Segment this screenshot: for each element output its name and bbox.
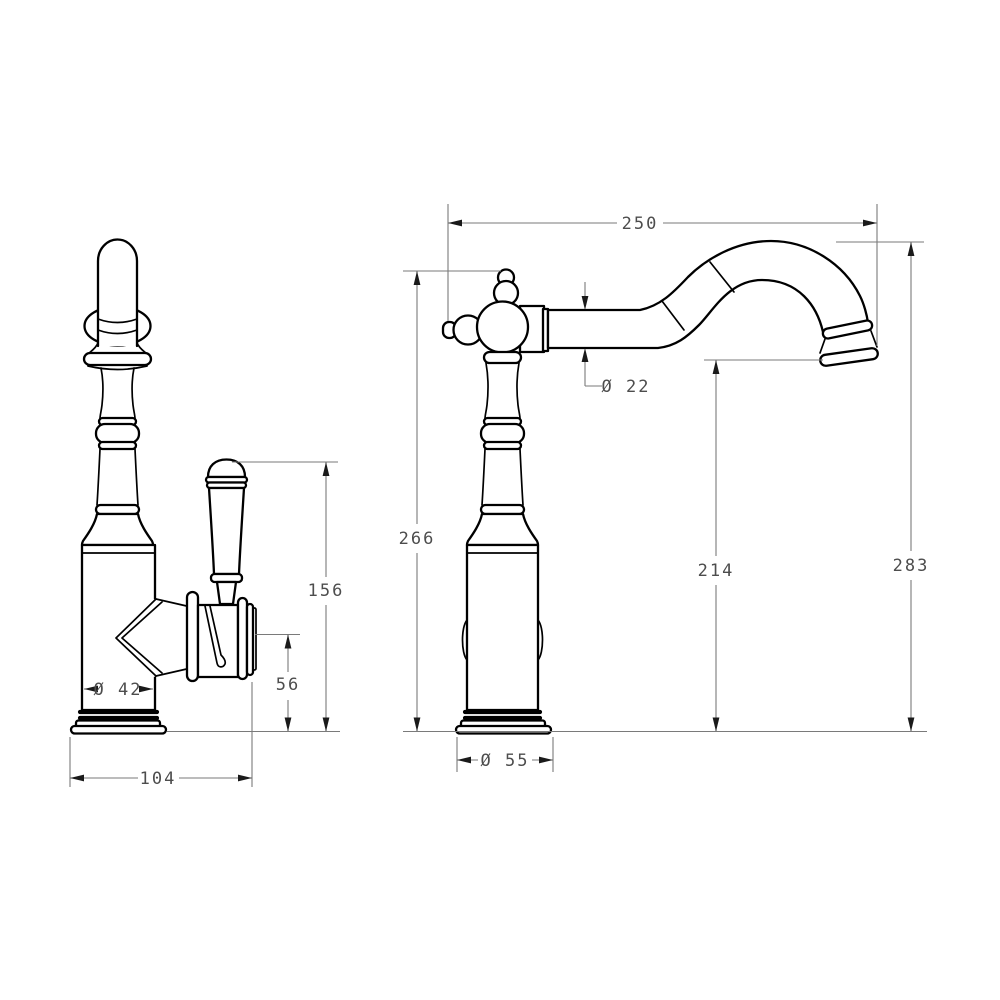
valve-end-cap-2 (247, 604, 253, 675)
arrow-156-up (323, 462, 330, 476)
arrow-104-right (238, 775, 252, 782)
arrow-266-down (414, 718, 421, 732)
spout-tube (98, 240, 137, 347)
valve-washer-large (187, 592, 198, 681)
arrow-214-down (713, 718, 720, 732)
arrow-104-left (70, 775, 84, 782)
arrow-250-right (863, 220, 877, 227)
arrow-dia22-down (582, 296, 589, 310)
handle-base-collar (211, 574, 242, 582)
column-cylinder (467, 545, 538, 710)
arrow-250-left (448, 220, 462, 227)
column-collar (484, 352, 521, 363)
arrow-214-up (713, 360, 720, 374)
collar-band (84, 353, 151, 365)
neck-left-profile (100, 368, 103, 419)
column-skirt (467, 514, 538, 545)
column-neck-left (485, 363, 488, 419)
lower-taper-right (135, 449, 138, 505)
dim-label-dia55: Ø 55 (481, 751, 530, 771)
outlet-flare-left (820, 339, 825, 353)
valve-body-ball (477, 302, 528, 353)
bead-ring-bottom (99, 442, 136, 449)
faucet-technical-drawing: 156 56 Ø 42 104 250 Ø 22 (0, 0, 1000, 1000)
arrow-266-up (414, 271, 421, 285)
dim-label-250: 250 (622, 214, 659, 234)
arrow-dia55-right (539, 757, 553, 764)
dim-label-214: 214 (698, 561, 735, 581)
skirt-flare (82, 514, 153, 545)
base-plate (71, 726, 166, 734)
dim-label-283: 283 (893, 556, 930, 576)
side-view (71, 240, 256, 734)
bead-ring-middle (96, 424, 139, 443)
collar-bottom-ellipse (88, 366, 147, 370)
column-taper-left (482, 449, 485, 505)
arrow-56-down (285, 718, 292, 732)
arrow-283-up (908, 242, 915, 256)
handle-grip (209, 488, 244, 574)
valve-end-cap-1 (238, 598, 247, 679)
column-taper-right (520, 449, 523, 505)
arrow-dia22-up (582, 348, 589, 362)
dim-label-56: 56 (276, 675, 300, 695)
dim-label-156: 156 (308, 581, 345, 601)
dim-label-dia22: Ø 22 (602, 377, 651, 397)
arrow-156-down (323, 718, 330, 732)
column-bead-bottom (484, 442, 521, 449)
dim-label-266: 266 (399, 529, 436, 549)
valve-end-cap-3 (253, 608, 256, 670)
neck-right-profile (132, 368, 135, 419)
column-bead-middle (481, 424, 524, 443)
swan-neck-spout (548, 241, 868, 348)
handle-neck (217, 582, 236, 604)
column-ring-band (481, 505, 524, 514)
column-base-plate (456, 726, 551, 734)
column-neck-right (517, 363, 520, 419)
arrow-dia55-left (457, 757, 471, 764)
drawing-sheet: 156 56 Ø 42 104 250 Ø 22 (0, 0, 1000, 1000)
dim-label-dia42: Ø 42 (94, 680, 143, 700)
ring-band (96, 505, 139, 514)
arrow-56-up (285, 635, 292, 649)
outlet-rim (820, 348, 879, 367)
arrow-283-down (908, 718, 915, 732)
outlet-flare-right (871, 331, 877, 347)
front-view (443, 241, 878, 734)
lower-taper-left (97, 449, 100, 505)
dim-label-104: 104 (140, 769, 177, 789)
